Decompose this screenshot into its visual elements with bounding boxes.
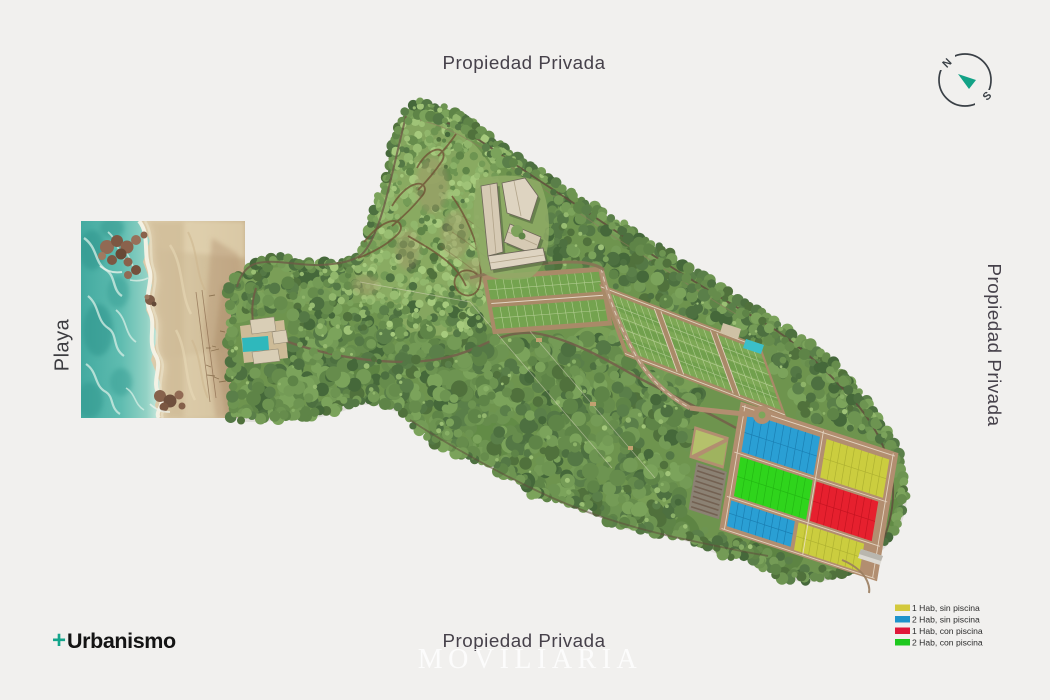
- svg-text:2 Hab, sin piscina: 2 Hab, sin piscina: [912, 615, 980, 625]
- svg-text:1 Hab, sin piscina: 1 Hab, sin piscina: [912, 603, 980, 613]
- svg-text:MOVILIARIA: MOVILIARIA: [418, 644, 643, 675]
- svg-text:2 Hab, con piscina: 2 Hab, con piscina: [912, 638, 983, 648]
- svg-text:Propiedad Privada: Propiedad Privada: [984, 263, 1005, 426]
- svg-text:1 Hab, con piscina: 1 Hab, con piscina: [912, 626, 983, 636]
- svg-text:Propiedad Privada: Propiedad Privada: [442, 52, 605, 73]
- svg-text:Urbanismo: Urbanismo: [67, 629, 176, 653]
- svg-text:+: +: [52, 627, 66, 654]
- svg-text:Playa: Playa: [51, 318, 73, 371]
